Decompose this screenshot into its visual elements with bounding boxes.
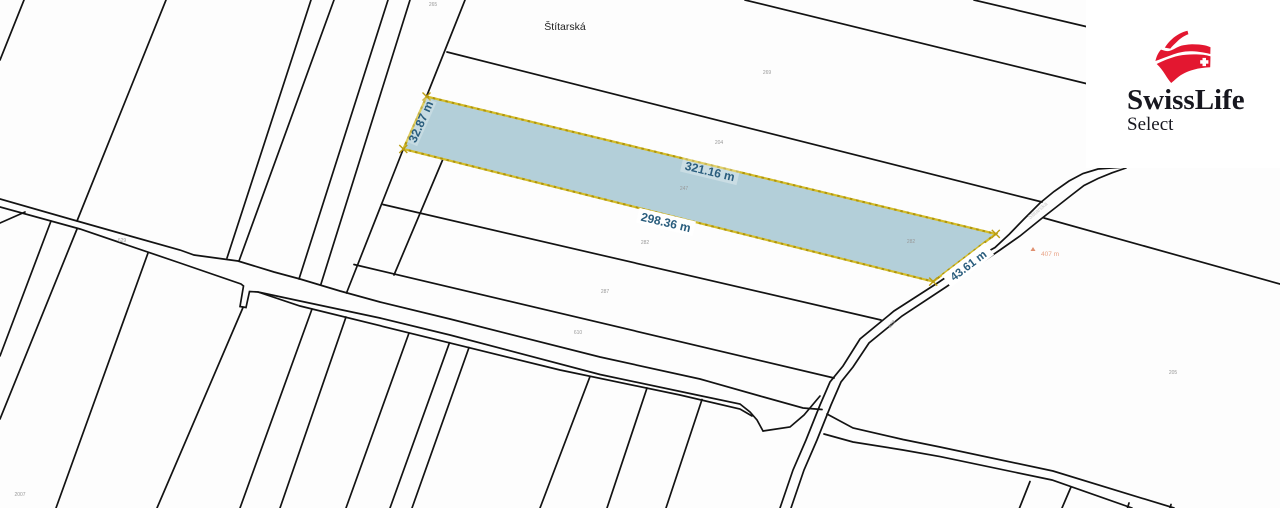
svg-text:282: 282 [641,240,650,246]
svg-text:Štítarská: Štítarská [544,20,586,33]
svg-text:247: 247 [680,186,689,192]
svg-text:269: 269 [763,70,772,76]
svg-text:Select: Select [1127,114,1174,135]
svg-text:629: 629 [118,238,127,244]
svg-text:287: 287 [601,289,610,295]
svg-text:SwissLife: SwissLife [1127,84,1245,116]
svg-text:265: 265 [429,2,438,8]
svg-text:2007: 2007 [14,492,25,498]
svg-text:205: 205 [1169,370,1178,376]
svg-text:407 m: 407 m [1041,251,1059,258]
svg-text:282: 282 [907,239,916,245]
svg-text:204: 204 [715,140,724,146]
svg-text:610: 610 [574,330,583,336]
